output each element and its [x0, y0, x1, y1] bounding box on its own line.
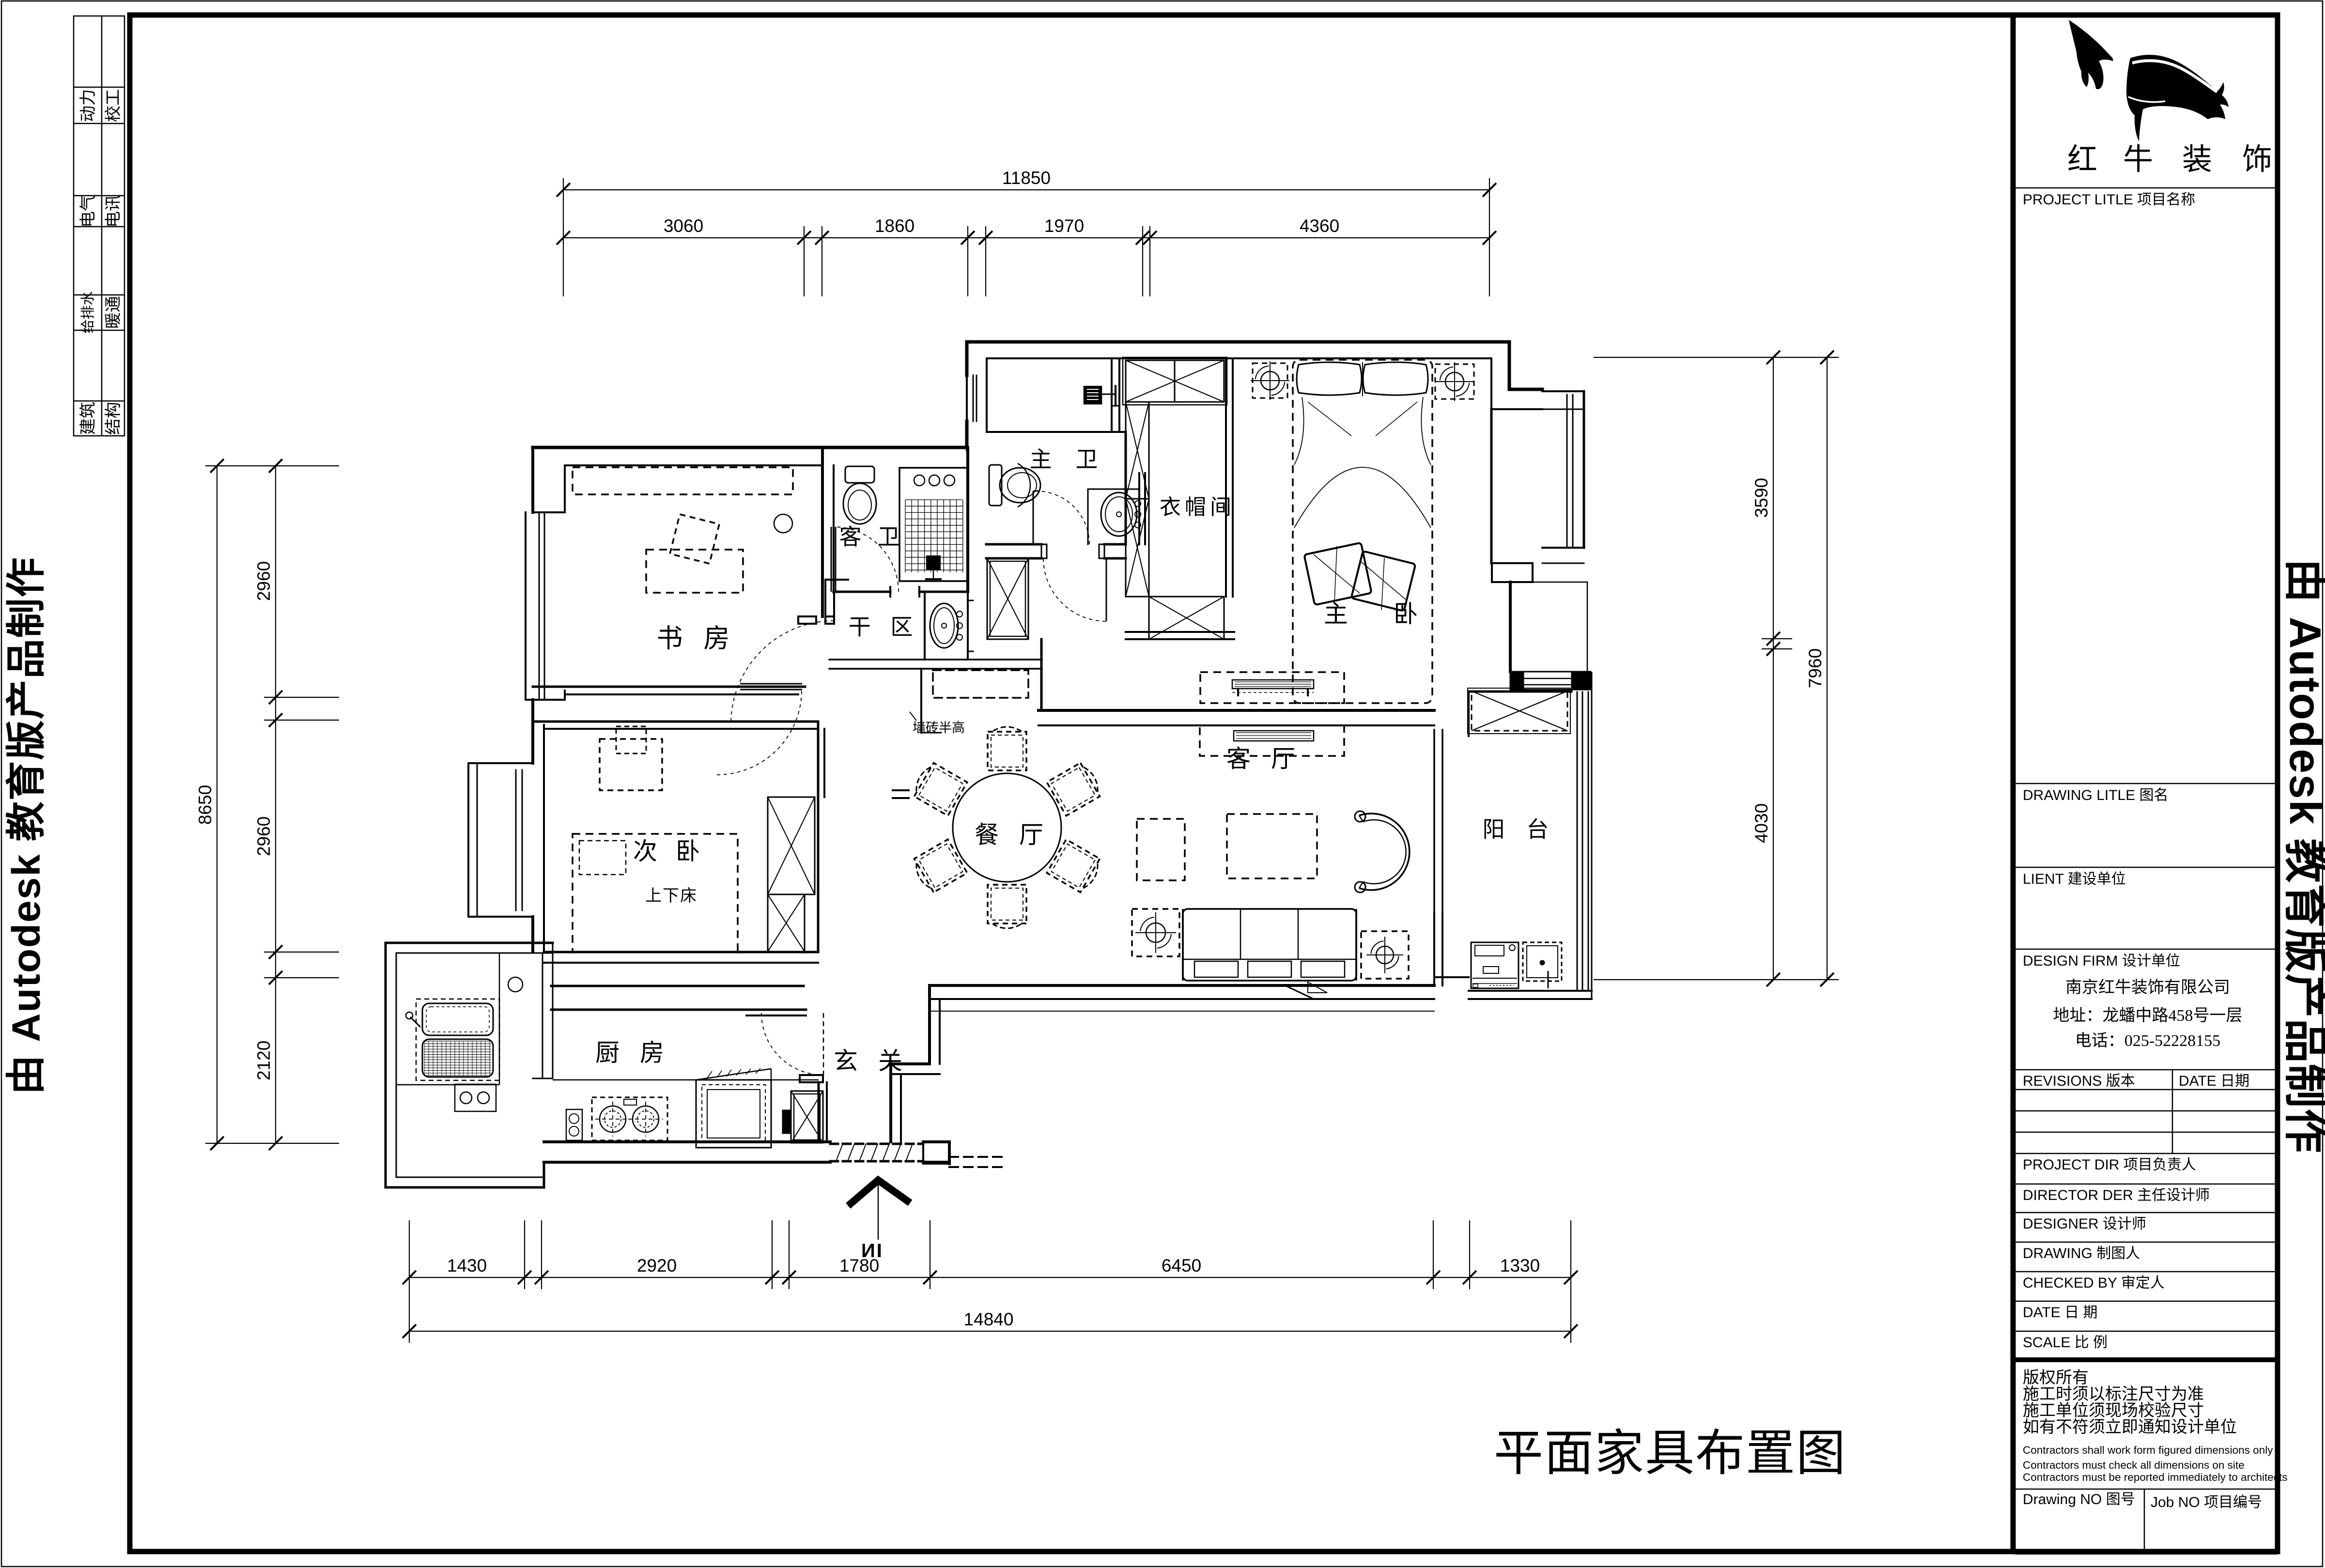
svg-text:1330: 1330 [1500, 1256, 1540, 1276]
svg-text:厨 房: 厨 房 [595, 1039, 671, 1066]
svg-text:Drawing NO 图号: Drawing NO 图号 [2023, 1491, 2135, 1507]
svg-text:ИI: ИI [861, 1240, 883, 1261]
svg-text:SCALE 比 例: SCALE 比 例 [2023, 1335, 2108, 1351]
svg-text:Job NO 项目编号: Job NO 项目编号 [2151, 1494, 2262, 1510]
svg-text:校工: 校工 [104, 89, 123, 122]
svg-text:DATE 日期: DATE 日期 [2179, 1073, 2249, 1089]
svg-text:餐 厅: 餐 厅 [975, 821, 1050, 848]
svg-text:玄 关: 玄 关 [834, 1047, 909, 1075]
svg-text:暖通: 暖通 [104, 296, 123, 329]
svg-text:电气: 电气 [79, 195, 97, 228]
svg-text:Contractors must be reporte: Contractors must be reported immediately… [2023, 1471, 2287, 1483]
svg-text:DESIGNER 设计师: DESIGNER 设计师 [2023, 1216, 2146, 1232]
svg-text:Contractors shall work form: Contractors shall work form figured dime… [2023, 1444, 2273, 1456]
svg-text:装: 装 [2182, 143, 2212, 176]
svg-text:饰: 饰 [2242, 143, 2272, 176]
svg-text:CHECKED BY 审定人: CHECKED BY 审定人 [2023, 1275, 2165, 1291]
svg-text:给排水: 给排水 [80, 291, 96, 333]
svg-text:阳 台: 阳 台 [1483, 817, 1557, 842]
svg-text:1970: 1970 [1044, 216, 1084, 236]
svg-text:DESIGN FIRM 设计单位: DESIGN FIRM 设计单位 [2023, 953, 2180, 969]
svg-text:红: 红 [2067, 143, 2097, 176]
svg-text:11850: 11850 [1002, 168, 1051, 188]
svg-text:衣帽间: 衣帽间 [1160, 495, 1235, 519]
svg-text:墙砖半高: 墙砖半高 [913, 721, 965, 735]
svg-text:地址：龙蟠中路458号一层: 地址：龙蟠中路458号一层 [2053, 1006, 2243, 1025]
svg-text:DRAWING 制图人: DRAWING 制图人 [2023, 1245, 2140, 1261]
svg-text:如有不符须立即通知设计单位: 如有不符须立即通知设计单位 [2023, 1418, 2237, 1436]
svg-text:DRAWING LITLE 图名: DRAWING LITLE 图名 [2023, 787, 2169, 803]
svg-text:结构: 结构 [104, 402, 123, 435]
svg-text:电讯: 电讯 [104, 195, 123, 228]
svg-text:电话：025-52228155: 电话：025-52228155 [2075, 1031, 2220, 1050]
svg-text:14840: 14840 [964, 1309, 1014, 1329]
svg-text:客 卫: 客 卫 [839, 524, 905, 550]
svg-text:版权所有: 版权所有 [2023, 1368, 2089, 1387]
svg-text:6450: 6450 [1162, 1256, 1201, 1276]
svg-text:DATE 日 期: DATE 日 期 [2023, 1305, 2097, 1321]
svg-text:PROJECT LITLE 项目名称: PROJECT LITLE 项目名称 [2023, 192, 2195, 208]
svg-text:2960: 2960 [254, 561, 274, 601]
svg-text:次 卧: 次 卧 [633, 838, 706, 865]
svg-text:书 房: 书 房 [656, 624, 736, 653]
svg-text:牛: 牛 [2123, 143, 2153, 176]
svg-text:动力: 动力 [79, 89, 97, 122]
svg-text:建筑: 建筑 [79, 402, 97, 435]
svg-text:南京红牛装饰有限公司: 南京红牛装饰有限公司 [2065, 978, 2230, 997]
svg-text:1430: 1430 [447, 1256, 487, 1276]
svg-text:由 Autodesk 教育版产品制作: 由 Autodesk 教育版产品制作 [2280, 558, 2325, 1153]
svg-text:Contractors must check all: Contractors must check all dimensions on… [2023, 1459, 2245, 1471]
svg-text:干 区: 干 区 [849, 615, 920, 640]
svg-text:1860: 1860 [875, 216, 914, 236]
svg-text:主 卫: 主 卫 [1030, 447, 1107, 472]
svg-text:DIRECTOR DER 主任设计师: DIRECTOR DER 主任设计师 [2023, 1187, 2210, 1203]
svg-text:REVISIONS 版本: REVISIONS 版本 [2023, 1073, 2135, 1089]
svg-text:3060: 3060 [664, 216, 703, 236]
svg-text:3590: 3590 [1751, 478, 1771, 518]
svg-text:2120: 2120 [254, 1041, 274, 1080]
svg-text:4030: 4030 [1751, 803, 1771, 843]
svg-text:客 厅: 客 厅 [1226, 745, 1302, 772]
svg-text:施工单位须现场校验尺寸: 施工单位须现场校验尺寸 [2023, 1401, 2204, 1420]
svg-text:PROJECT DIR 项目负责人: PROJECT DIR 项目负责人 [2023, 1157, 2196, 1173]
svg-text:LIENT 建设单位: LIENT 建设单位 [2023, 871, 2126, 887]
svg-text:上下床: 上下床 [645, 887, 697, 905]
svg-text:2920: 2920 [637, 1256, 677, 1276]
svg-text:2960: 2960 [254, 816, 274, 856]
svg-text:8650: 8650 [195, 785, 215, 825]
svg-text:4360: 4360 [1300, 216, 1339, 236]
svg-text:由 Autodesk 教育版产品制作: 由 Autodesk 教育版产品制作 [4, 556, 48, 1094]
svg-text:7960: 7960 [1805, 648, 1825, 688]
svg-text:施工时须以标注尺寸为准: 施工时须以标注尺寸为准 [2023, 1385, 2204, 1403]
svg-text:主 卧: 主 卧 [1324, 600, 1437, 628]
svg-text:平面家具布置图: 平面家具布置图 [1494, 1427, 1846, 1481]
